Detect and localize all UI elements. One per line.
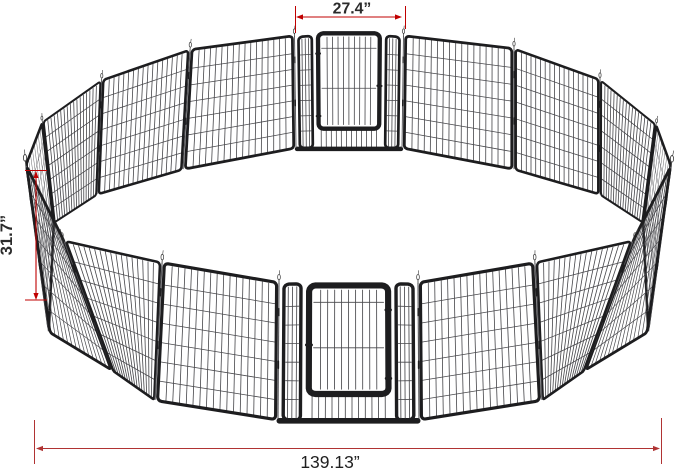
svg-text:139.13”: 139.13” (300, 452, 360, 470)
svg-text:27.4”: 27.4” (333, 1, 372, 18)
svg-text:31.7”: 31.7” (0, 215, 16, 255)
